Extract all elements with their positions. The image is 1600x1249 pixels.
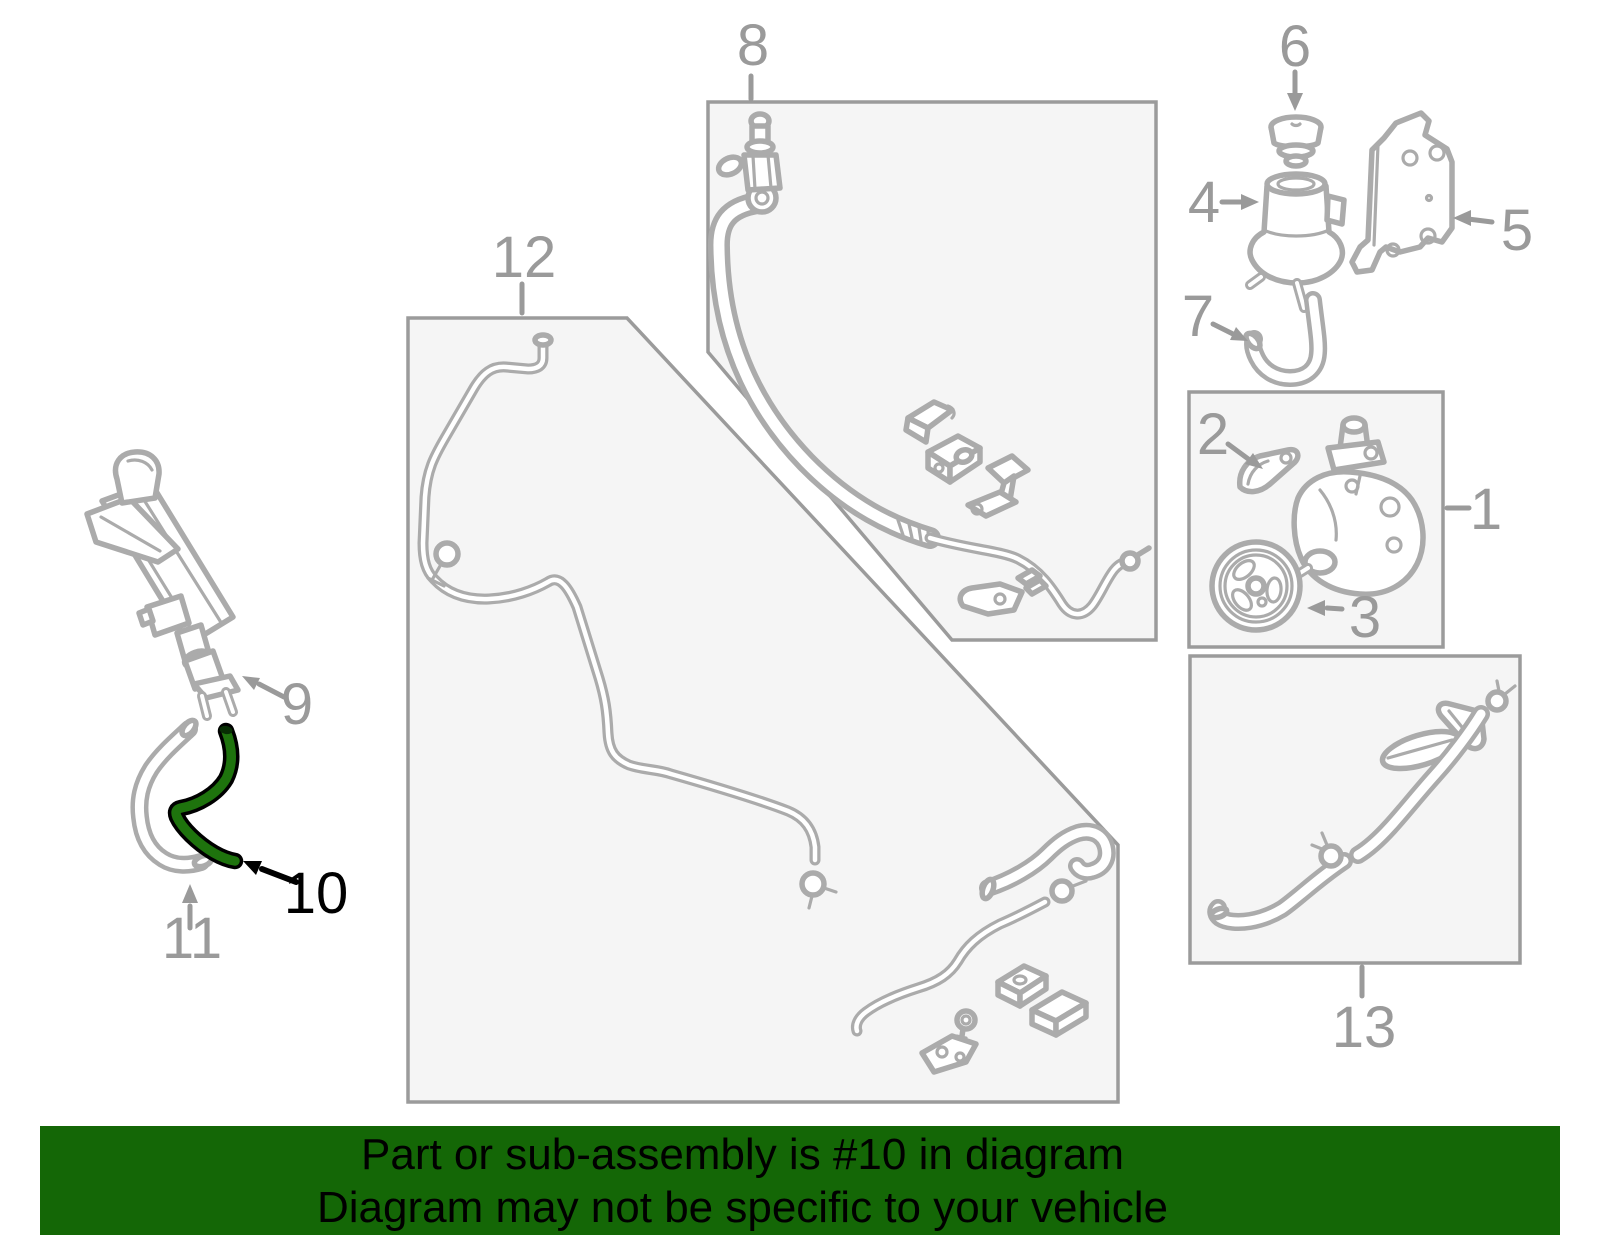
callout-13: 13 [1332,967,1397,1060]
callout-5-arrowhead-icon [1453,210,1471,226]
callout-4-label: 4 [1188,170,1220,235]
parts-diagram: 1 2 3 4 5 6 7 8 9 10 [0,0,1600,1249]
clamp-icon [1488,692,1506,710]
callout-13-label: 13 [1332,995,1397,1060]
callout-1: 1 [1447,477,1502,542]
callout-5: 5 [1453,198,1533,263]
clamp-icon [1052,881,1072,901]
callout-6-arrowhead-icon [1287,93,1303,111]
callout-3-label: 3 [1349,585,1381,650]
banner-line-2: Diagram may not be specific to your vehi… [317,1181,1168,1234]
banner-line-1: Part or sub-assembly is #10 in diagram [361,1128,1124,1181]
callout-11-arrowhead-icon [182,884,198,903]
callout-4-arrowhead-icon [1241,194,1259,210]
callout-12-label: 12 [492,225,557,290]
callout-6: 6 [1279,14,1311,111]
clamp-icon [802,873,824,895]
part-6-cap [1271,117,1321,166]
callout-5-label: 5 [1501,198,1533,263]
callout-3-arrow [1327,608,1342,609]
part-10-hose-highlighted [176,725,235,861]
reservoir-assembly [1243,113,1452,378]
callout-5-arrow [1468,219,1492,222]
callout-10-arrowhead-icon [243,861,262,875]
bolt-icon [957,1011,975,1029]
pump-fitting [1343,418,1365,432]
hose-fitting [744,155,780,190]
part-4-reservoir [1250,174,1344,308]
callout-11-label: 11 [162,906,222,971]
callout-8: 8 [737,13,769,99]
pump-pulley [1212,542,1300,630]
callout-8-label: 8 [737,13,769,78]
callout-10-label: 10 [284,861,349,926]
callout-9: 9 [242,672,313,737]
parts-diagram-stage: 1 2 3 4 5 6 7 8 9 10 [0,0,1600,1249]
highlight-banner: Part or sub-assembly is #10 in diagram D… [40,1126,1560,1235]
callout-1-label: 1 [1470,477,1502,542]
tube-end-ring [535,335,551,345]
callout-11: 11 [162,884,222,971]
callout-4: 4 [1188,170,1259,235]
callout-7: 7 [1182,284,1248,349]
callout-9-arrowhead-icon [242,676,260,690]
clamp-icon [436,543,458,565]
callout-9-label: 9 [281,672,313,737]
pump-body [1294,472,1423,594]
callout-12: 12 [492,225,557,313]
callout-10-highlighted: 10 [243,861,348,926]
callout-7-label: 7 [1182,284,1214,349]
part-5-bracket [1352,113,1452,272]
callout-7-arrow [1213,324,1235,335]
clamp-icon [1321,846,1341,866]
part-7-hose [1243,300,1318,378]
callout-2-label: 2 [1197,402,1229,467]
callout-6-label: 6 [1279,14,1311,79]
part-9-cooler-assembly [87,452,238,716]
